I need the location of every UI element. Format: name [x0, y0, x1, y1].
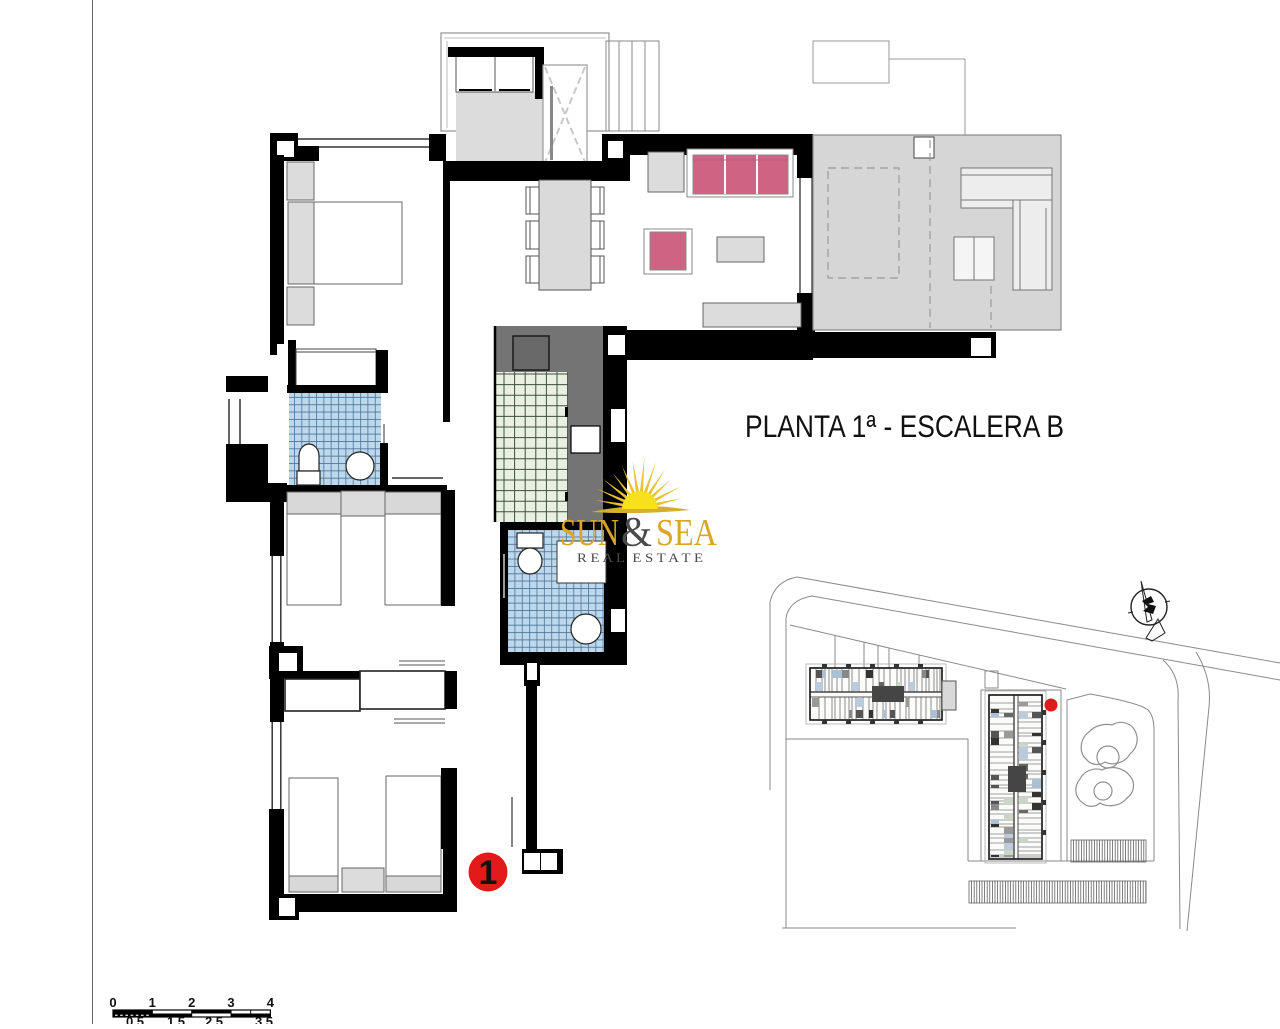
svg-text:1.5: 1.5 [167, 1014, 185, 1024]
svg-text:2: 2 [188, 995, 195, 1010]
svg-text:0.5: 0.5 [126, 1014, 144, 1024]
svg-text:3: 3 [227, 995, 234, 1010]
svg-text:1: 1 [149, 995, 156, 1010]
svg-text:SUN: SUN [560, 512, 619, 554]
svg-text:SEA: SEA [656, 512, 717, 554]
svg-text:1: 1 [479, 854, 498, 892]
svg-text:3.5: 3.5 [255, 1014, 273, 1024]
svg-text:&: & [621, 510, 652, 556]
svg-text:R E A L E S T A T E: R E A L E S T A T E [577, 551, 703, 565]
svg-text:2.5: 2.5 [205, 1014, 223, 1024]
svg-text:0: 0 [109, 995, 116, 1010]
svg-text:PLANTA 1ª - ESCALERA B: PLANTA 1ª - ESCALERA B [745, 408, 1064, 444]
svg-text:4: 4 [267, 995, 275, 1010]
